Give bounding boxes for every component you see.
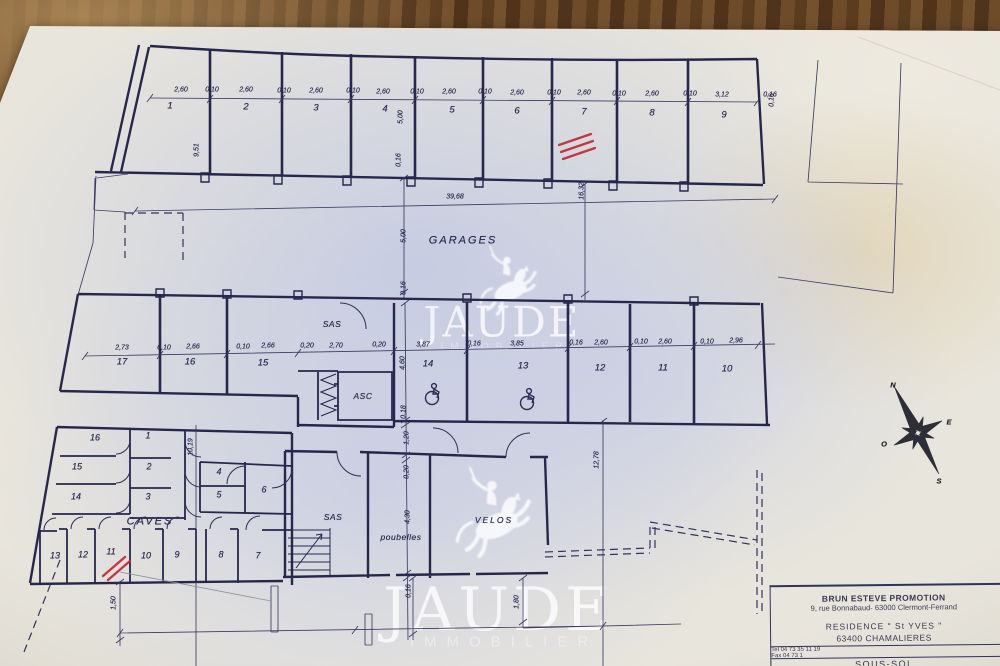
room-label-velos: VELOS	[475, 516, 513, 525]
dim-label: 0,10	[236, 344, 250, 351]
paper-crease	[858, 37, 1000, 90]
dim-label: 0,20	[300, 343, 314, 350]
cave-number: 3	[145, 493, 150, 502]
dim-label: 2,96	[729, 338, 743, 345]
floor-plan-linework	[0, 0, 1000, 666]
garage-number: 13	[518, 361, 529, 371]
cave-number: 2	[146, 463, 151, 472]
cave-number: 14	[71, 493, 81, 502]
room-label-caves: CAVES	[127, 517, 174, 528]
dim-label: 2,60	[442, 89, 456, 96]
dim-label: 0,10	[683, 91, 697, 98]
dimension-lines	[78, 60, 903, 666]
dim-label: 0,10	[547, 90, 561, 97]
dim-label-vertical: 0,18	[401, 405, 408, 419]
garage-number: 16	[185, 357, 196, 367]
dim-label: 0,10	[478, 89, 492, 96]
dim-label-vertical: 0,16	[401, 281, 408, 295]
title-block-city: 63400 CHAMALIERES	[771, 632, 997, 644]
garage-number: 8	[649, 108, 654, 118]
knight-watermark-icons	[457, 247, 535, 556]
dim-label: 0,20	[372, 342, 386, 349]
title-block-contact-row: Tel 04 73 35 11 19 Fax 04 73 1	[771, 644, 1000, 659]
room-label-garages: GARAGES	[429, 236, 497, 247]
title-block-sheet-title: SOUS-SOL	[771, 658, 997, 666]
wheelchair-icon	[426, 384, 535, 410]
garage-number: 17	[117, 357, 128, 367]
garage-number: 3	[313, 103, 318, 113]
garage-number: 10	[722, 364, 733, 374]
dim-label: 2,60	[594, 340, 608, 347]
dim-label: 2,60	[645, 91, 659, 98]
dim-label: 2,60	[309, 88, 323, 95]
dim-label: 0,16	[569, 340, 583, 347]
dashed-boundary-lines	[24, 212, 762, 652]
dim-label-vertical: 0,20	[404, 465, 411, 479]
garage-number: 6	[514, 106, 519, 116]
cave-number: 5	[216, 491, 221, 500]
cave-number: 12	[78, 551, 88, 560]
dim-label-vertical: 1,50	[111, 596, 118, 610]
dim-label-vertical: 0,16	[406, 584, 413, 598]
walls	[30, 45, 770, 585]
compass-north-label: N	[890, 381, 895, 389]
dim-label: 0,10	[205, 87, 219, 94]
dim-label: 2,60	[658, 339, 672, 346]
room-label-sas-upper: SAS	[323, 320, 342, 329]
garage-number: 12	[595, 363, 606, 373]
dim-label: 2,66	[186, 344, 200, 351]
dim-label-vertical: 0,16	[769, 93, 776, 107]
cave-number: 10	[141, 552, 151, 561]
dim-label: 0,10	[612, 91, 626, 98]
dim-label: 2,60	[376, 89, 390, 96]
compass-east-label: E	[946, 418, 951, 426]
dim-label: 0,10	[410, 89, 424, 96]
room-label-poubelles: poubelles	[381, 533, 422, 542]
garage-number: 4	[382, 104, 387, 114]
title-block: BRUN ESTEVE PROMOTION 9, rue Bonnabaud- …	[770, 583, 1000, 666]
garage-number: 14	[423, 359, 434, 369]
dim-label-vertical: 4,30	[405, 510, 412, 524]
dim-label-vertical: 12,78	[594, 451, 601, 469]
cave-number: 9	[174, 551, 179, 560]
dim-label-vertical: 0,16	[396, 153, 403, 167]
garage-number: 2	[243, 102, 248, 112]
dim-label: 0,16	[467, 341, 481, 348]
pillar-symbols	[156, 173, 698, 305]
compass-west-label: O	[881, 440, 887, 448]
garage-number: 5	[449, 105, 454, 115]
door-swing-arcs	[44, 303, 530, 530]
cave-number: 16	[90, 434, 100, 443]
compass-rose-icon	[870, 374, 963, 486]
cave-number: 15	[72, 463, 82, 472]
dim-label: 3,12	[715, 92, 729, 99]
dim-label: 2,70	[329, 343, 343, 350]
dim-label-total: 39,68	[446, 194, 464, 201]
room-label-sas-lower: SAS	[324, 513, 343, 522]
cave-number: 6	[261, 486, 266, 495]
cave-number: 11	[106, 548, 115, 557]
dim-label: 0,10	[157, 345, 171, 352]
dim-label: 0,10	[634, 339, 648, 346]
dim-label-vertical: 1,20	[404, 431, 411, 445]
cave-number: 13	[50, 552, 60, 561]
photo-of-floor-plan: JAUDE IMMOBILIER JAUDE IMMOBILIER	[0, 0, 1000, 666]
garage-number: 11	[658, 363, 668, 373]
dim-label: 2,60	[239, 87, 253, 94]
cave-number: 7	[255, 552, 260, 561]
dim-label-vertical: 10,19	[188, 438, 195, 456]
dim-label: 3,87	[416, 342, 430, 349]
cave-number: 4	[216, 468, 221, 477]
room-label-asc: ASC	[354, 392, 373, 401]
dim-label-vertical: 4,60	[400, 356, 407, 370]
garage-number: 9	[721, 110, 726, 120]
dim-label: 2,60	[577, 90, 591, 97]
dim-label: 2,73	[115, 345, 129, 352]
dim-label: 2,60	[510, 90, 524, 97]
dim-label-vertical: 9,51	[194, 143, 201, 157]
cave-number: 8	[218, 551, 223, 560]
dim-label: 0,10	[700, 339, 714, 346]
dim-label-vertical: 5,00	[401, 229, 408, 243]
garage-number: 7	[581, 107, 586, 117]
cave-number: 1	[145, 432, 150, 441]
dim-label: 2,60	[174, 87, 188, 94]
dim-label: 0,10	[346, 88, 360, 95]
garage-number: 1	[167, 101, 172, 111]
dim-label: 0,10	[277, 88, 291, 95]
dim-label-vertical: 5,00	[398, 110, 405, 124]
title-block-residence: RESIDENCE " St YVES "	[771, 620, 997, 632]
dim-label-vertical: 1,80	[514, 595, 521, 609]
garage-number: 15	[258, 358, 269, 368]
title-block-address: 9, rue Bonnabaud- 63000 Clermont-Ferrand	[771, 602, 997, 613]
compass-south-label: S	[936, 477, 941, 485]
dim-label-vertical: 16,32	[579, 182, 586, 200]
dim-label: 3,85	[510, 341, 524, 348]
dim-label: 2,66	[261, 343, 275, 350]
